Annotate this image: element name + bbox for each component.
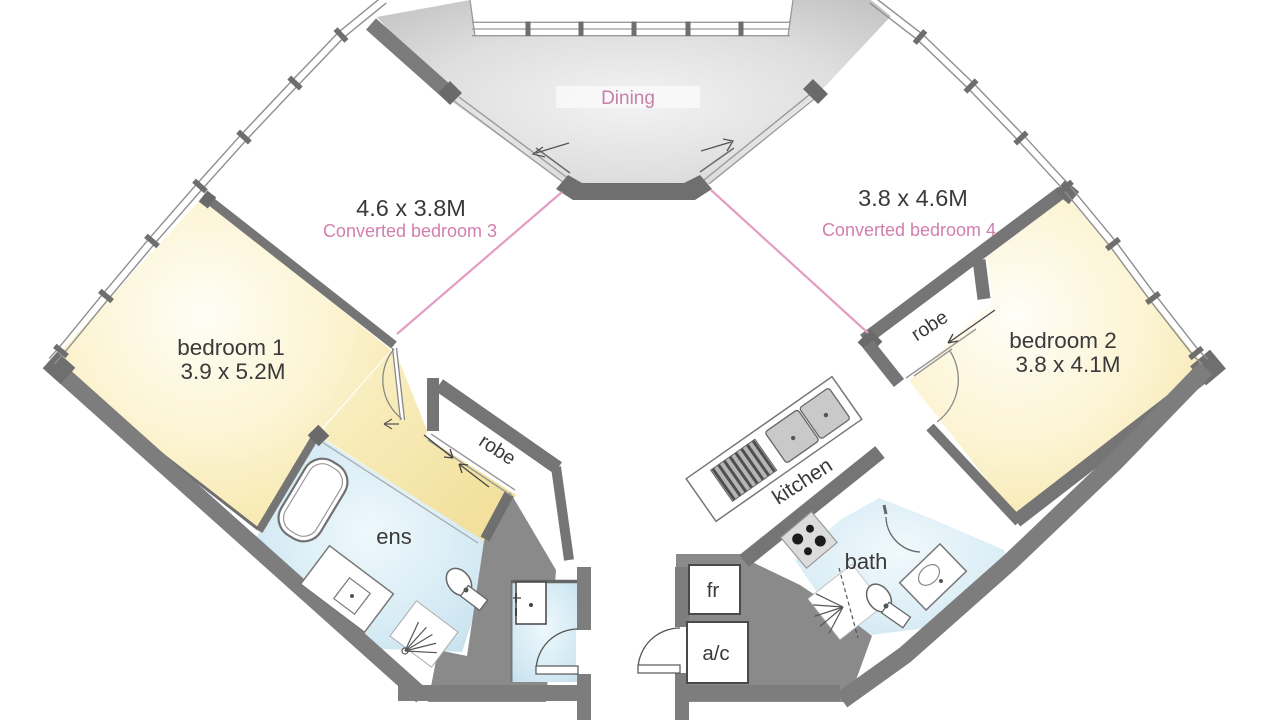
svg-text:3.8 x 4.6M: 3.8 x 4.6M <box>858 185 968 211</box>
svg-text:Converted bedroom 3: Converted bedroom 3 <box>323 221 497 241</box>
svg-text:Converted bedroom 4: Converted bedroom 4 <box>822 220 996 240</box>
svg-text:fr: fr <box>707 579 720 602</box>
svg-text:Dining: Dining <box>601 88 655 109</box>
svg-text:bedroom 2: bedroom 2 <box>1009 328 1117 353</box>
svg-text:bath: bath <box>845 549 888 574</box>
svg-text:bedroom 1: bedroom 1 <box>177 335 285 360</box>
svg-text:a/c: a/c <box>702 642 729 665</box>
svg-text:ens: ens <box>376 524 411 549</box>
svg-text:4.6 x 3.8M: 4.6 x 3.8M <box>356 195 466 221</box>
svg-text:3.8 x 4.1M: 3.8 x 4.1M <box>1015 352 1120 377</box>
svg-text:3.9 x 5.2M: 3.9 x 5.2M <box>180 359 285 384</box>
